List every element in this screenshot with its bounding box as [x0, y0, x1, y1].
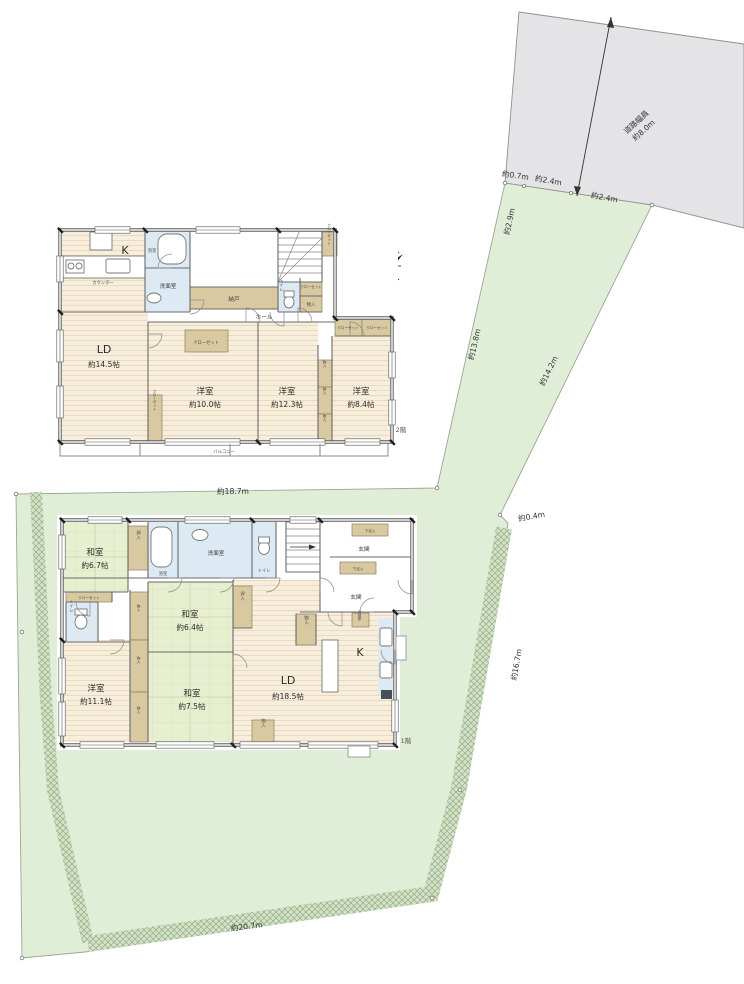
floor2-plan: K カウンター 浴室 洗面室 納戸 トイレ クローゼット クローゼット 物入 ホ… [54, 222, 407, 460]
site-plan: 道路幅員 約8.0m 約0.7m 約2.4m 約2.4m 約2.9m 約13.8… [14, 12, 744, 960]
f1-bathtub-icon [151, 527, 172, 567]
f2-hall-label: ホール [256, 314, 273, 321]
f1-storage-strip3-label: 物入 [136, 706, 141, 715]
f2-floor-tag: 2階 [396, 425, 407, 434]
f2-closet-room3a-label: クローゼット [337, 325, 359, 330]
f1-shoebox1-label: 下足入 [365, 528, 376, 533]
f2-washroom [145, 268, 190, 312]
f1-jp-room2-label: 和室 [181, 609, 199, 620]
f2-room3-size: 約8.4帖 [348, 399, 375, 409]
f2-nando-label: 納戸 [228, 295, 240, 303]
f2-room1-label: 洋室 [196, 386, 214, 397]
f2-room2-label: 洋室 [278, 386, 296, 397]
f2-ld-floor [60, 312, 148, 442]
f1-entrance1-label: 玄関 [358, 545, 370, 553]
f1-closet-left-label: クローゼット [78, 595, 100, 600]
f1-jp-room3-label: 和室 [183, 688, 201, 699]
f1-storage-bottom-label: 物入 [261, 717, 266, 727]
f1-jp-room1-label: 和室 [86, 547, 104, 558]
f2-stairs [278, 230, 322, 282]
f1-bath-label: 浴室 [159, 570, 168, 577]
f1-oshiire-b-label: 押入 [240, 590, 245, 600]
f1-jp-room2-size: 約6.4帖 [177, 622, 204, 632]
f2-ld-label: LD [97, 343, 112, 356]
f1-jp-room1-size: 約6.7帖 [82, 560, 109, 570]
floor-plan-page: 道路幅員 約8.0m 約0.7m 約2.4m 約2.4m 約2.9m 約13.8… [0, 0, 744, 984]
f2-storage-mid-label: 物入 [307, 301, 316, 308]
f1-ld-size: 約18.5帖 [272, 691, 304, 701]
f1-washroom [178, 522, 252, 578]
f2-room3-label: 洋室 [352, 386, 370, 397]
f1-room1-size: 約11.1帖 [80, 696, 112, 706]
f2-room2-size: 約12.3帖 [271, 399, 303, 409]
f1-washroom-label: 洗面室 [208, 549, 225, 557]
f1-storage-strip2-label: 物入 [136, 656, 141, 665]
f2-closet-room1-label: クローゼット [193, 339, 219, 346]
f2-storage-strip1-label: 物入 [322, 360, 327, 369]
f1-room1-label: 洋室 [87, 683, 105, 694]
dim-jog: 約0.4m [517, 509, 545, 524]
f2-closet-strip-label: クローゼット [152, 388, 157, 410]
f2-bath-label: 浴室 [148, 247, 157, 254]
f2-ld-size: 約14.5帖 [88, 359, 120, 369]
f2-basin-icon [147, 293, 161, 303]
f2-storage-strip3-label: 物入 [322, 414, 327, 423]
f1-storage-ld-label: 物入 [304, 614, 309, 624]
f2-room1-size: 約10.0帖 [189, 399, 221, 409]
f1-kitchen-label: K [356, 646, 364, 659]
f2-closet-mid-label: クローゼット [300, 284, 322, 289]
f2-counter-label: カウンター [92, 279, 113, 286]
f1-entrance2-label: 玄関 [350, 593, 362, 601]
floor-plan-svg: 道路幅員 約8.0m 約0.7m 約2.4m 約2.4m 約2.9m 約13.8… [0, 0, 744, 984]
f1-basin-icon [192, 530, 208, 541]
f2-kitchen-label: K [121, 244, 129, 257]
f1-jp-room3-size: 約7.5帖 [179, 701, 206, 711]
f2-toilet-icon [284, 291, 294, 308]
f1-toilet-mid-label: トイレ [258, 569, 271, 574]
f1-shoebox2-label: 下足入 [353, 566, 364, 571]
f2-storage-strip2-label: 物入 [322, 387, 327, 396]
f2-room2-floor [258, 322, 318, 442]
f1-stairs [286, 522, 320, 572]
f2-washroom-label: 洗面室 [160, 282, 177, 290]
f2-bathtub-icon [158, 234, 186, 264]
f1-floor-tag: 1階 [401, 736, 412, 745]
f2-closet-tr-label: クローゼット [326, 222, 331, 244]
dim-house-width: 約18.7m [217, 486, 249, 496]
f1-toilet-left-icon [75, 609, 87, 629]
f2-closet-room3b-label: クローゼット [366, 325, 388, 330]
f1-toilet-mid-icon [259, 537, 270, 555]
dim-east: 約16.7m [508, 648, 523, 681]
f1-fridge-label: 冷蔵庫 [357, 609, 362, 621]
floor1-plan: 和室 約6.7帖 押入 浴室 洗面室 トイレ 下足入 玄関 下足入 玄関 クロー… [57, 515, 417, 757]
f2-balcony-label: バルコニー [213, 449, 234, 455]
f1-storage-strip1-label: 物入 [136, 604, 141, 613]
f1-oshiire-a-label: 押入 [136, 529, 141, 539]
f1-toilet-left-label: トイレ [69, 600, 74, 613]
f1-ld-label: LD [281, 674, 296, 687]
f2-toilet-label: トイレ [279, 279, 284, 292]
